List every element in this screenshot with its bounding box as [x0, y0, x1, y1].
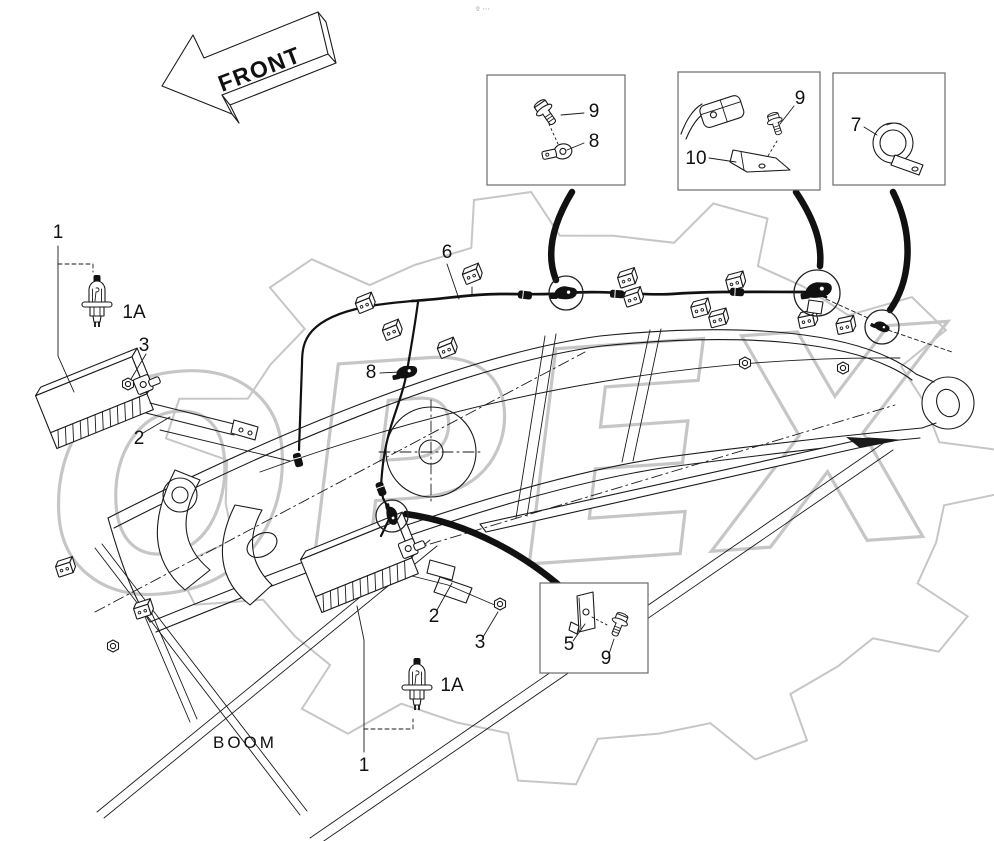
- part-callout-box1-clamp: 8: [589, 131, 600, 152]
- part-callout-wiring-harness: 6: [442, 242, 453, 263]
- front-arrow: FRONT: [162, 12, 336, 123]
- detail-box-bracket-bolt: [540, 583, 648, 673]
- part-callout-box4-bracket: 5: [564, 634, 575, 655]
- part-callout-nut-lower: 3: [475, 632, 486, 653]
- parts-diagram-canvas: OPEX: [0, 0, 994, 841]
- part-callout-box2-bolt: 9: [795, 88, 806, 109]
- part-callout-bulb-lower: 1A: [440, 675, 464, 696]
- part-callout-box2-bracket: 10: [685, 148, 706, 169]
- parts-diagram-page: OPEX: [0, 0, 994, 841]
- detail-box-bolt-clamp: [487, 75, 625, 185]
- part-callout-bracket-lower: 2: [429, 606, 440, 627]
- part-callout-nut-upper: 3: [139, 335, 150, 356]
- part-callout-work-light-lower: 1: [359, 755, 370, 776]
- part-callout-box1-bolt: 9: [589, 101, 600, 122]
- page-mark: º ···: [476, 5, 490, 14]
- part-callout-bulb-upper: 1A: [122, 302, 146, 323]
- halogen-bulb-upper: [82, 275, 112, 327]
- part-callout-bracket-upper: 2: [134, 428, 145, 449]
- boom-label: BOOM: [213, 733, 277, 752]
- part-callout-work-light-upper: 1: [53, 222, 64, 243]
- halogen-bulb-lower: [402, 658, 432, 710]
- part-callout-box3-p-clamp: 7: [851, 115, 862, 136]
- part-callout-box4-bolt: 9: [601, 648, 612, 669]
- part-callout-clamp-mid: 8: [366, 362, 377, 383]
